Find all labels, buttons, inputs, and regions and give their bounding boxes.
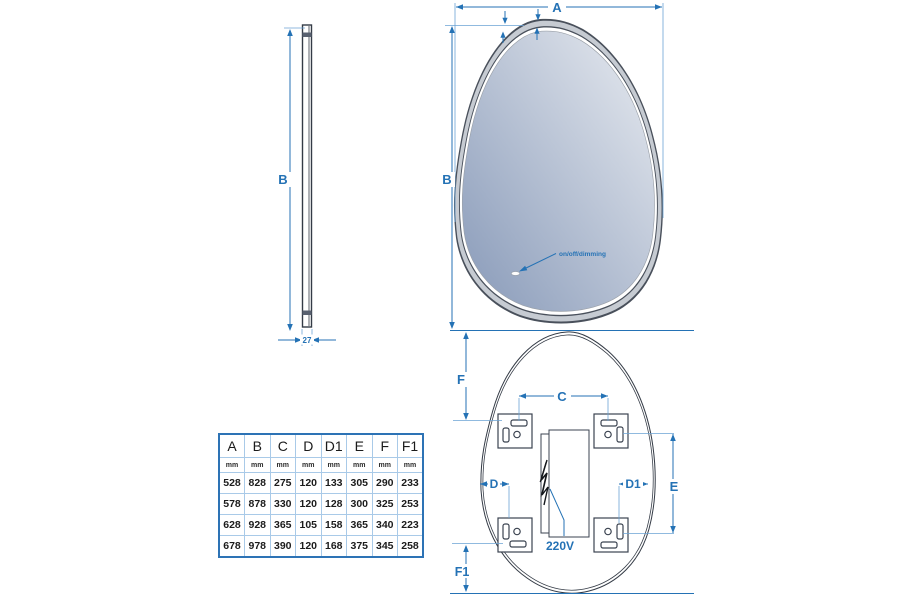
- side-profile-top-cap: [303, 33, 312, 38]
- dim-label-e: E: [670, 479, 679, 494]
- side-profile-bottom-cap: [303, 311, 312, 316]
- value-cell: 390: [270, 536, 296, 558]
- value-cell: 330: [270, 494, 296, 515]
- power-label: 220V: [546, 539, 574, 553]
- touch-sensor-dot: [511, 272, 519, 276]
- col-header: F1: [398, 434, 424, 458]
- table-row: 628 928 365 105 158 365 340 223: [219, 515, 423, 536]
- dim-label-a: A: [552, 0, 562, 15]
- dim-label-c: C: [557, 389, 567, 404]
- dim-label-b-front: B: [442, 172, 451, 187]
- dim-label-f1: F1: [455, 565, 470, 579]
- dim-f1: F1: [452, 544, 503, 593]
- dim-label-f: F: [457, 372, 465, 387]
- unit-cell: mm: [398, 458, 424, 473]
- side-view: B 27: [276, 25, 336, 346]
- drawing-svg: B 27 A: [0, 0, 900, 600]
- value-cell: 578: [219, 494, 245, 515]
- unit-cell: mm: [245, 458, 271, 473]
- value-cell: 340: [372, 515, 398, 536]
- value-cell: 290: [372, 473, 398, 494]
- unit-cell: mm: [219, 458, 245, 473]
- dim-label-d: D: [490, 477, 499, 491]
- unit-cell: mm: [296, 458, 322, 473]
- technical-drawing-canvas: B 27 A: [0, 0, 900, 600]
- value-cell: 628: [219, 515, 245, 536]
- table-row: 678 978 390 120 168 375 345 258: [219, 536, 423, 558]
- value-cell: 253: [398, 494, 424, 515]
- dim-b-side: B: [276, 28, 305, 331]
- col-header: F: [372, 434, 398, 458]
- value-cell: 158: [321, 515, 347, 536]
- value-cell: 325: [372, 494, 398, 515]
- mounting-bracket-bottom-left: [498, 518, 532, 552]
- col-header: D: [296, 434, 322, 458]
- value-cell: 120: [296, 536, 322, 558]
- mounting-bracket-top-left: [498, 414, 532, 448]
- side-profile: [303, 25, 312, 327]
- unit-cell: mm: [372, 458, 398, 473]
- dim-depth: 27: [278, 329, 336, 346]
- value-cell: 978: [245, 536, 271, 558]
- value-cell: 300: [347, 494, 373, 515]
- table-header-row: A B C D D1 E F F1: [219, 434, 423, 458]
- dim-label-d1: D1: [625, 477, 641, 491]
- value-cell: 128: [321, 494, 347, 515]
- col-header: A: [219, 434, 245, 458]
- table-row: 578 878 330 120 128 300 325 253: [219, 494, 423, 515]
- value-cell: 133: [321, 473, 347, 494]
- value-cell: 375: [347, 536, 373, 558]
- junction-box: [549, 430, 589, 537]
- mounting-bracket-top-right: [594, 414, 628, 448]
- value-cell: 928: [245, 515, 271, 536]
- value-cell: 105: [296, 515, 322, 536]
- col-header: B: [245, 434, 271, 458]
- front-view: A B on/off/dimming: [439, 0, 663, 329]
- value-cell: 120: [296, 473, 322, 494]
- value-cell: 233: [398, 473, 424, 494]
- unit-cell: mm: [321, 458, 347, 473]
- col-header: C: [270, 434, 296, 458]
- dim-label-b-side: B: [278, 172, 287, 187]
- dimension-table: A B C D D1 E F F1 mm mm mm mm mm mm mm m…: [218, 433, 424, 551]
- value-cell: 168: [321, 536, 347, 558]
- value-cell: 528: [219, 473, 245, 494]
- unit-cell: mm: [347, 458, 373, 473]
- back-view: 220V: [450, 331, 694, 594]
- mounting-bracket-bottom-right: [594, 518, 628, 552]
- table-units-row: mm mm mm mm mm mm mm mm: [219, 458, 423, 473]
- table-row: 528 828 275 120 133 305 290 233: [219, 473, 423, 494]
- value-cell: 120: [296, 494, 322, 515]
- unit-cell: mm: [270, 458, 296, 473]
- value-cell: 258: [398, 536, 424, 558]
- value-cell: 678: [219, 536, 245, 558]
- dim-label-depth: 27: [303, 336, 312, 345]
- value-cell: 878: [245, 494, 271, 515]
- value-cell: 275: [270, 473, 296, 494]
- value-cell: 365: [270, 515, 296, 536]
- col-header: E: [347, 434, 373, 458]
- value-cell: 305: [347, 473, 373, 494]
- sensor-label: on/off/dimming: [559, 251, 606, 258]
- value-cell: 365: [347, 515, 373, 536]
- value-cell: 828: [245, 473, 271, 494]
- value-cell: 345: [372, 536, 398, 558]
- col-header: D1: [321, 434, 347, 458]
- value-cell: 223: [398, 515, 424, 536]
